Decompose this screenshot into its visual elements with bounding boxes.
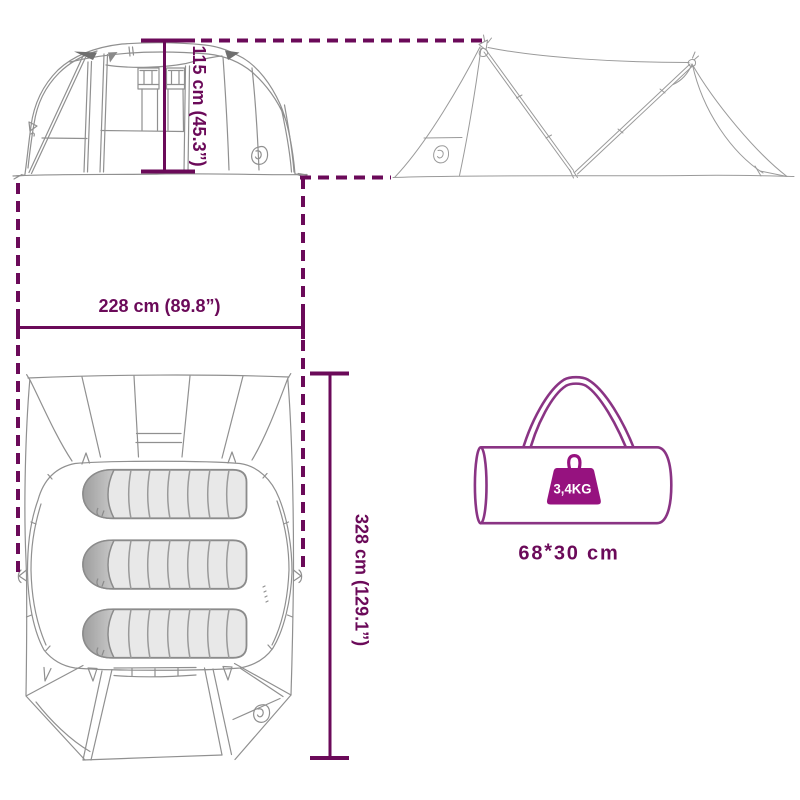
svg-text:228 cm (89.8”): 228 cm (89.8”): [98, 296, 220, 316]
svg-text:68*30 cm: 68*30 cm: [518, 541, 619, 565]
svg-text:3,4KG: 3,4KG: [554, 481, 592, 497]
svg-text:328 cm (129.1”): 328 cm (129.1”): [352, 514, 372, 646]
svg-text:115 cm (45.3”): 115 cm (45.3”): [189, 46, 209, 167]
